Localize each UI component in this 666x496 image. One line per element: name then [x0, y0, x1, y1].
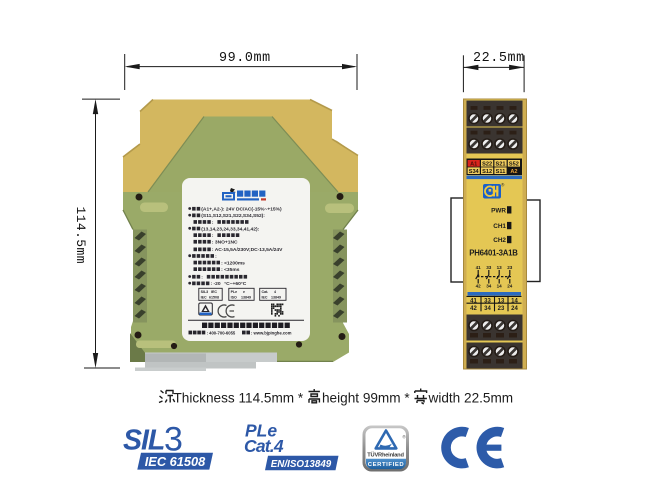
- svg-text:S21: S21: [496, 161, 506, 167]
- svg-text:IEC: IEC: [211, 290, 217, 294]
- svg-text:SIL: SIL: [123, 425, 164, 457]
- svg-text:24: 24: [507, 284, 513, 289]
- svg-text:41: 41: [470, 298, 477, 304]
- svg-text:width 22.5mm: width 22.5mm: [428, 391, 514, 406]
- svg-text:34: 34: [484, 306, 491, 312]
- svg-text:A2: A2: [510, 169, 517, 175]
- svg-text:14: 14: [497, 284, 503, 289]
- svg-text:S22: S22: [482, 161, 492, 167]
- svg-text:CH1: CH1: [493, 223, 506, 230]
- svg-text:Cat.4: Cat.4: [244, 436, 284, 456]
- svg-text:°C~+60: °C~+60: [224, 281, 241, 287]
- svg-text:33: 33: [484, 298, 491, 304]
- svg-text:13849: 13849: [271, 295, 281, 299]
- svg-text:S34: S34: [469, 169, 480, 175]
- svg-text:A1: A1: [470, 161, 477, 167]
- svg-text:13849: 13849: [241, 295, 251, 299]
- svg-text:: 400-700-6055: : 400-700-6055: [207, 330, 236, 335]
- svg-text:ISO: ISO: [231, 295, 237, 299]
- svg-text:23: 23: [507, 265, 513, 270]
- svg-text:CH2: CH2: [493, 237, 506, 244]
- svg-text:IEC 61508: IEC 61508: [145, 454, 206, 469]
- svg-text:4: 4: [274, 290, 276, 294]
- svg-text:: AC-15,5A/230V;DC-13,5A/24V: : AC-15,5A/230V;DC-13,5A/24V: [212, 247, 283, 253]
- svg-text:23: 23: [498, 306, 505, 312]
- svg-text:42: 42: [470, 306, 477, 312]
- svg-text:height 99mm *: height 99mm *: [322, 391, 410, 406]
- svg-text:33: 33: [486, 265, 492, 270]
- svg-text:Cat.: Cat.: [262, 290, 269, 294]
- svg-text:41: 41: [476, 265, 482, 270]
- svg-text:(13,14,23,24,33,34,41,42):: (13,14,23,24,33,34,41,42):: [201, 226, 259, 232]
- svg-text:(A1+,A2-): 24V DC/AC(-15%~+15%: (A1+,A2-): 24V DC/AC(-15%~+15%): [201, 207, 282, 213]
- svg-text:CERTIFIED: CERTIFIED: [368, 462, 405, 468]
- svg-text:61508: 61508: [209, 295, 219, 299]
- svg-text:PLe: PLe: [231, 290, 238, 294]
- svg-text:Thickness 114.5mm *: Thickness 114.5mm *: [174, 391, 304, 406]
- svg-text:SIL3: SIL3: [201, 290, 209, 294]
- svg-text:EN/ISO13849: EN/ISO13849: [271, 459, 332, 470]
- svg-text:34: 34: [486, 284, 492, 289]
- svg-text:42: 42: [476, 284, 482, 289]
- svg-text:: <1200ms: : <1200ms: [221, 260, 245, 266]
- svg-text:(S11,S12,S21,S22,S34,S52):: (S11,S12,S21,S22,S34,S52):: [201, 213, 265, 219]
- svg-text:: -20: : -20: [211, 281, 221, 287]
- svg-text:22.5mm: 22.5mm: [473, 51, 525, 66]
- svg-text:: 3NO+1NC: : 3NO+1NC: [212, 240, 238, 246]
- svg-text:13: 13: [498, 298, 505, 304]
- svg-text:: www.bjpinghe.com: : www.bjpinghe.com: [251, 330, 292, 335]
- svg-text:PWR: PWR: [491, 207, 506, 214]
- svg-text:S12: S12: [482, 169, 492, 175]
- svg-text:°C: °C: [241, 281, 247, 287]
- svg-text:e: e: [243, 290, 245, 294]
- svg-text:114.5mm: 114.5mm: [73, 207, 88, 264]
- svg-text:TÜVRheinland: TÜVRheinland: [367, 451, 404, 458]
- svg-text:13: 13: [497, 265, 503, 270]
- svg-text:S11: S11: [496, 169, 506, 175]
- svg-text:S52: S52: [509, 161, 519, 167]
- svg-text:24: 24: [511, 306, 518, 312]
- svg-text:IEC: IEC: [201, 295, 207, 299]
- svg-text:IEC: IEC: [262, 295, 268, 299]
- svg-text:PH6401-3A1B: PH6401-3A1B: [469, 249, 518, 258]
- svg-text:99.0mm: 99.0mm: [219, 51, 271, 66]
- svg-text:: <35ms: : <35ms: [221, 267, 240, 273]
- svg-text:14: 14: [511, 298, 518, 304]
